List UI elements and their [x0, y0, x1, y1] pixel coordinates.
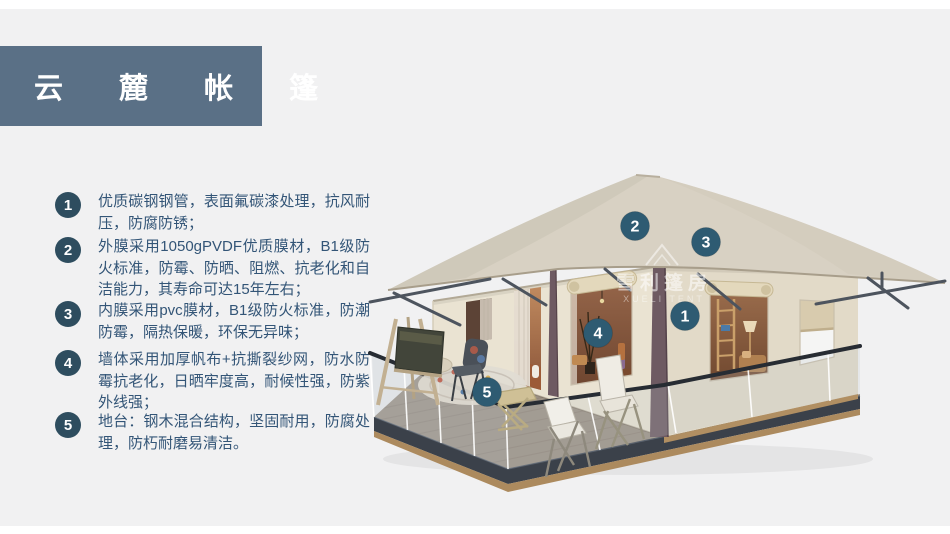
- feature-text-1: 优质碳钢钢管，表面氟碳漆处理，抗风耐压，防腐防锈；: [98, 191, 370, 234]
- feature-badge-2: 2: [55, 237, 81, 263]
- feature-badge-5: 5: [55, 412, 81, 438]
- feature-text-2: 外膜采用1050gPVDF优质膜材，B1级防火标准，防霉、防晒、阻燃、抗老化和自…: [98, 236, 370, 301]
- window-a: [466, 298, 492, 343]
- feature-list: 1 优质碳钢钢管，表面氟碳漆处理，抗风耐压，防腐防锈； 2 外膜采用1050gP…: [55, 9, 375, 526]
- marker-4: 4: [584, 319, 613, 348]
- feature-item-1: 1 优质碳钢钢管，表面氟碳漆处理，抗风耐压，防腐防锈；: [55, 191, 370, 234]
- feature-badge-4: 4: [55, 350, 81, 376]
- feature-item-2: 2 外膜采用1050gPVDF优质膜材，B1级防火标准，防霉、防晒、阻燃、抗老化…: [55, 236, 370, 301]
- watermark-line1: 雪利篷房: [616, 271, 712, 294]
- svg-text:1: 1: [681, 309, 690, 326]
- feature-badge-1: 1: [55, 192, 81, 218]
- feature-text-3: 内膜采用pvc膜材，B1级防火标准，防潮防霉，隔热保暖，环保无异味；: [98, 300, 370, 343]
- feature-item-5: 5 地台：钢木混合结构，坚固耐用，防腐处理，防朽耐磨易清洁。: [55, 411, 370, 454]
- svg-text:5: 5: [483, 385, 492, 402]
- feature-item-3: 3 内膜采用pvc膜材，B1级防火标准，防潮防霉，隔热保暖，环保无异味；: [55, 300, 370, 343]
- slide-background: 云 麓 帐 篷 1 优质碳钢钢管，表面氟碳漆处理，抗风耐压，防腐防锈； 2 外膜…: [0, 9, 950, 526]
- tent-illustration: 雪利篷房 XUELI TENT 2 3 1 4 5: [368, 159, 950, 504]
- marker-5: 5: [473, 378, 502, 407]
- watermark-line2: XUELI TENT: [623, 294, 705, 304]
- doorway: [514, 287, 541, 390]
- feature-badge-3: 3: [55, 301, 81, 327]
- marker-1: 1: [671, 302, 700, 331]
- svg-text:3: 3: [702, 235, 711, 252]
- marker-3: 3: [692, 228, 721, 257]
- feature-text-5: 地台：钢木混合结构，坚固耐用，防腐处理，防朽耐磨易清洁。: [98, 411, 370, 454]
- svg-text:2: 2: [631, 219, 640, 236]
- feature-item-4: 4 墙体采用加厚帆布+抗撕裂纱网，防水防霉抗老化，日晒牢度高，耐候性强，防紫外线…: [55, 349, 370, 414]
- feature-text-4: 墙体采用加厚帆布+抗撕裂纱网，防水防霉抗老化，日晒牢度高，耐候性强，防紫外线强；: [98, 349, 370, 414]
- svg-text:4: 4: [594, 326, 603, 343]
- marker-2: 2: [621, 212, 650, 241]
